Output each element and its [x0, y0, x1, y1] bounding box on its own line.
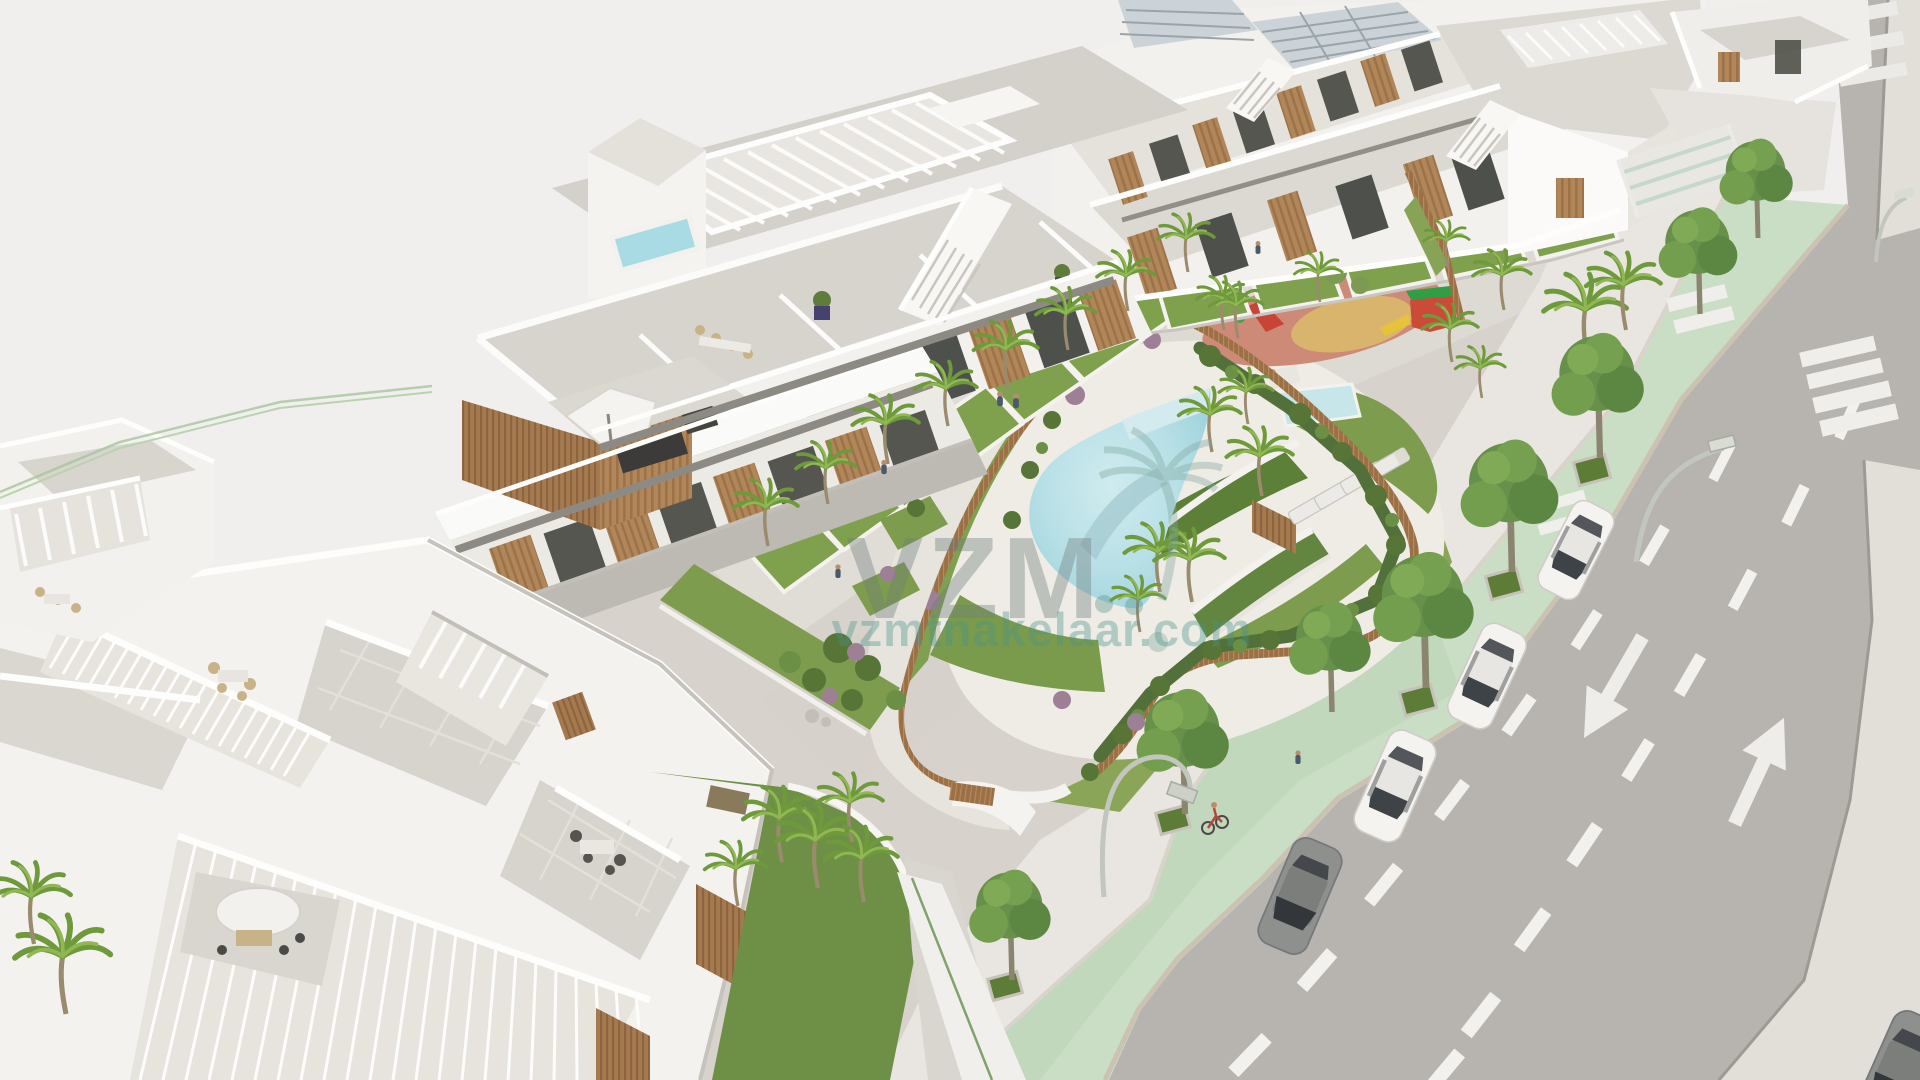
svg-text:vzmtnakelaar.com: vzmtnakelaar.com	[832, 603, 1253, 656]
